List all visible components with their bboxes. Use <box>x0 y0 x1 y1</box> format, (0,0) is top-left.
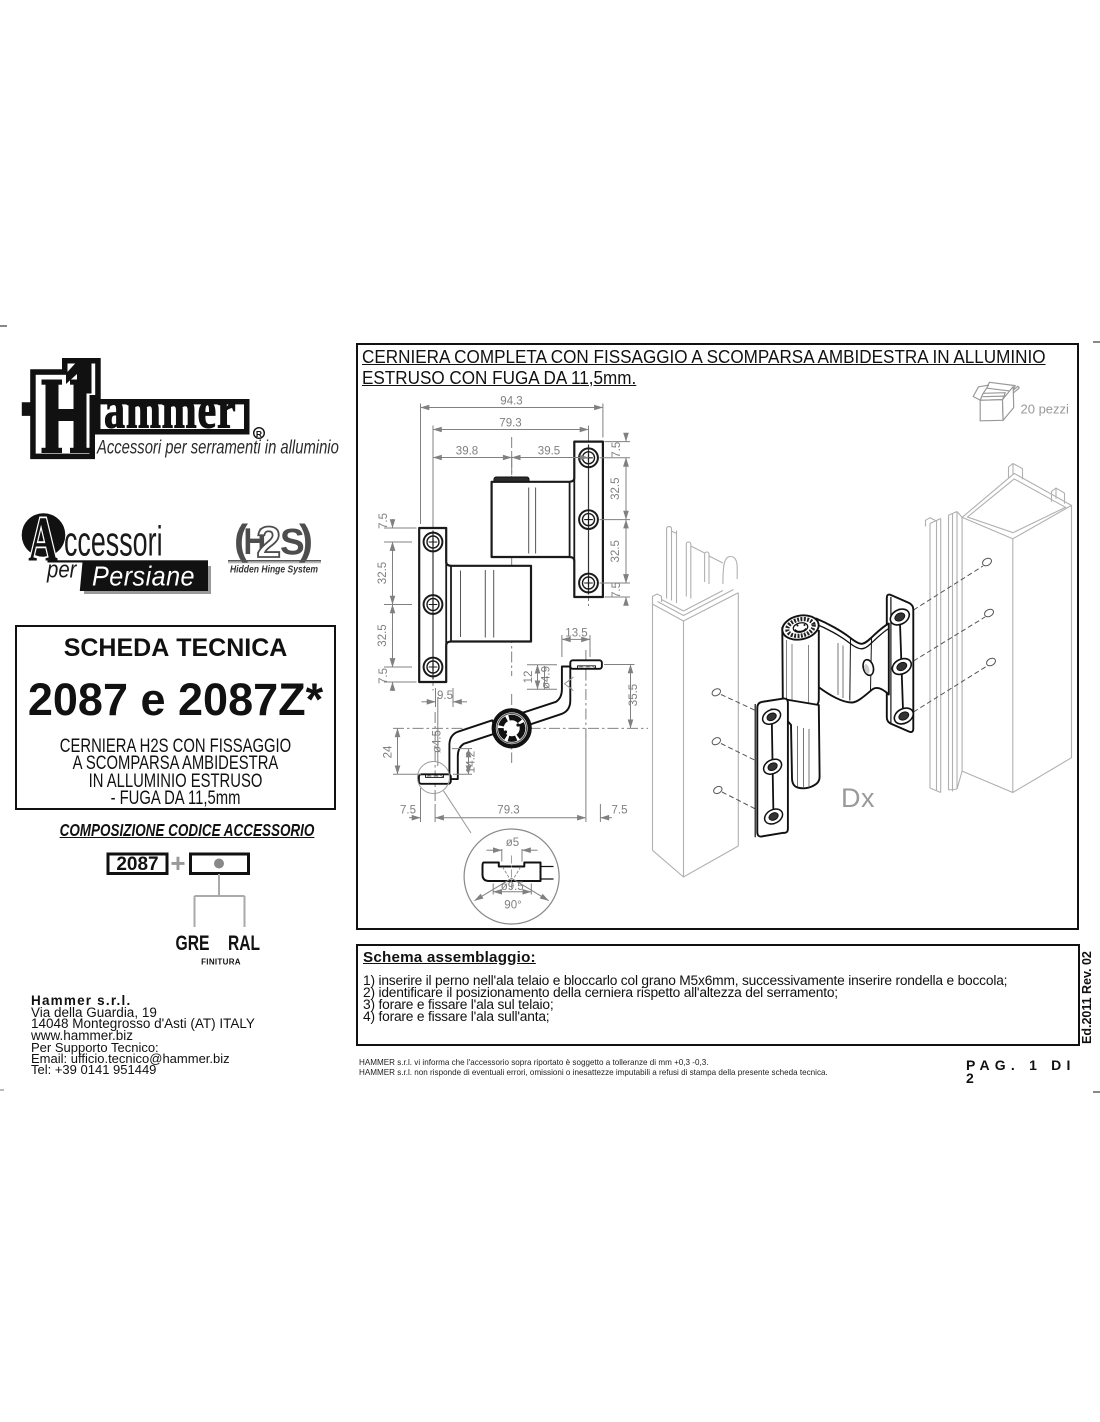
svg-text:90°: 90° <box>504 900 521 912</box>
svg-text:9.5: 9.5 <box>437 690 453 702</box>
svg-text:7.5: 7.5 <box>611 582 623 598</box>
svg-text:2: 2 <box>257 518 281 567</box>
svg-text:7.5: 7.5 <box>378 668 390 684</box>
svg-text:7.5: 7.5 <box>612 805 628 817</box>
svg-text:2087: 2087 <box>116 854 158 875</box>
svg-text:ø5: ø5 <box>506 837 519 849</box>
svg-text:35.5: 35.5 <box>628 684 640 706</box>
svg-text:32.5: 32.5 <box>610 478 622 500</box>
svg-text:32.5: 32.5 <box>377 624 389 646</box>
svg-text:7.5: 7.5 <box>611 442 623 458</box>
svg-text:ø4.9: ø4.9 <box>541 666 553 689</box>
svg-text:13.5: 13.5 <box>565 628 587 640</box>
svg-text:7.5: 7.5 <box>400 805 416 817</box>
svg-text:per: per <box>46 556 78 583</box>
svg-text:32.5: 32.5 <box>610 540 622 562</box>
svg-text:FINITURA: FINITURA <box>201 958 241 967</box>
svg-text:Dx: Dx <box>841 783 875 813</box>
svg-text:Accessori per serramenti in al: Accessori per serramenti in alluminio <box>96 437 339 458</box>
svg-text:94.3: 94.3 <box>500 396 522 408</box>
svg-text:): ) <box>299 516 313 563</box>
svg-text:24: 24 <box>383 745 395 758</box>
svg-text:39.5: 39.5 <box>538 446 560 458</box>
svg-text:ammer: ammer <box>104 381 236 440</box>
svg-text:Persiane: Persiane <box>92 560 195 592</box>
svg-text:GRE: GRE <box>176 932 210 955</box>
svg-text:20 pezzi: 20 pezzi <box>1021 402 1070 417</box>
svg-text:79.3: 79.3 <box>497 805 519 817</box>
svg-text:39.8: 39.8 <box>456 446 478 458</box>
svg-text:12: 12 <box>523 671 535 684</box>
svg-text:RAL: RAL <box>228 932 260 955</box>
svg-text:79.3: 79.3 <box>499 418 521 430</box>
svg-text:7.5: 7.5 <box>378 513 390 529</box>
svg-text:14.2: 14.2 <box>466 751 478 773</box>
svg-text:32.5: 32.5 <box>377 562 389 584</box>
svg-text:ccessori: ccessori <box>64 519 163 565</box>
svg-text:+: + <box>170 848 185 878</box>
svg-text:Hidden Hinge System: Hidden Hinge System <box>230 564 318 576</box>
